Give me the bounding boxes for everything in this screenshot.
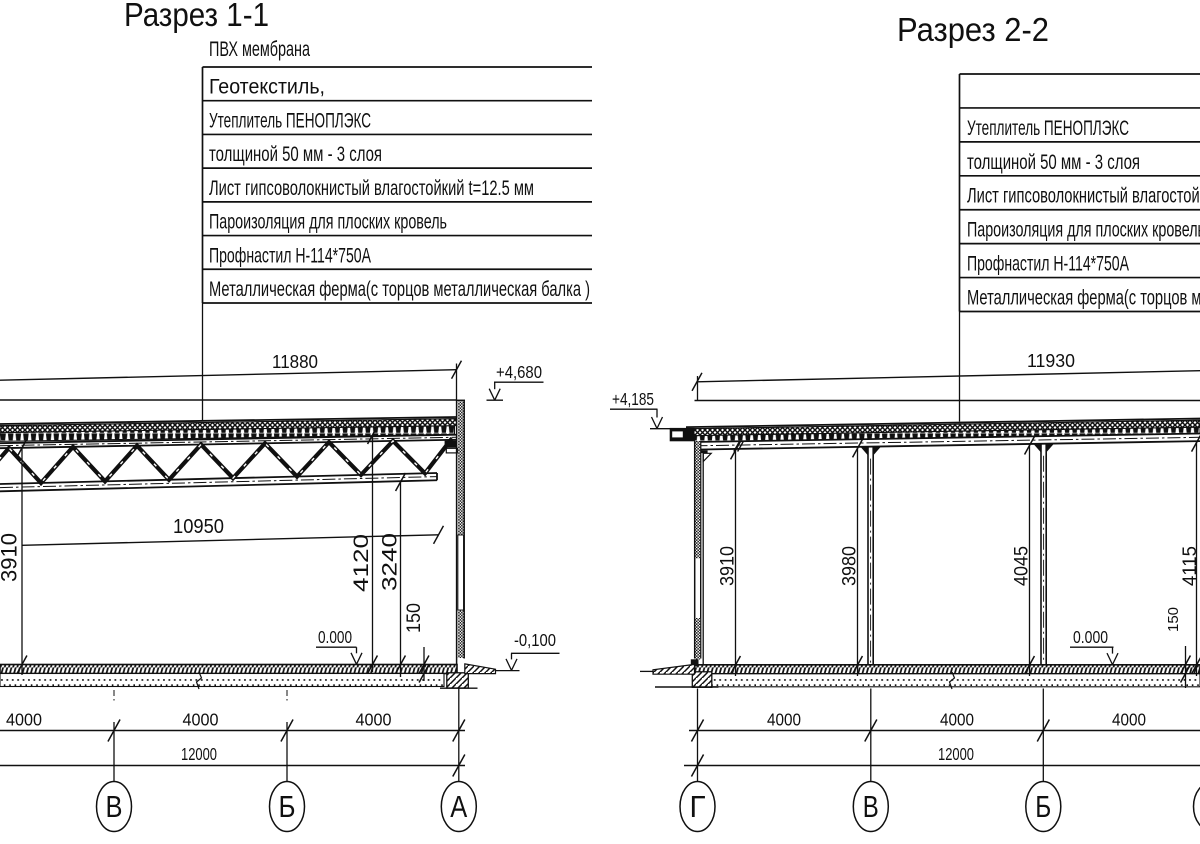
svg-text:10950: 10950 <box>173 516 224 538</box>
svg-text:В: В <box>863 789 879 824</box>
svg-text:Б: Б <box>279 789 296 824</box>
svg-text:Профнастил Н-114*750А: Профнастил Н-114*750А <box>209 244 371 267</box>
svg-text:Металлическая ферма(с торцов м: Металлическая ферма(с торцов металлическ… <box>967 287 1200 310</box>
svg-text:Б: Б <box>1035 789 1051 824</box>
svg-text:+4,680: +4,680 <box>496 362 542 382</box>
svg-text:Пароизоляция для плоских крове: Пароизоляция для плоских кровель <box>209 211 447 234</box>
svg-text:ПВХ мембрана: ПВХ мембрана <box>209 38 310 61</box>
svg-text:0.000: 0.000 <box>318 627 352 647</box>
svg-text:толщиной 50 мм - 3 слоя: толщиной 50 мм - 3 слоя <box>209 143 382 166</box>
svg-text:-0,100: -0,100 <box>514 630 556 650</box>
svg-text:0.000: 0.000 <box>1073 627 1108 647</box>
svg-text:3240: 3240 <box>379 533 402 591</box>
svg-text:толщиной 50 мм - 3 слоя: толщиной 50 мм - 3 слоя <box>967 151 1140 174</box>
svg-text:Г: Г <box>690 789 706 824</box>
svg-text:11930: 11930 <box>1027 350 1075 371</box>
svg-text:4120: 4120 <box>350 534 373 592</box>
svg-text:4115: 4115 <box>1180 546 1200 586</box>
svg-text:Геотекстиль,: Геотекстиль, <box>209 76 325 99</box>
svg-text:12000: 12000 <box>938 744 974 764</box>
svg-text:Металлическая ферма(с торцов м: Металлическая ферма(с торцов металлическ… <box>209 278 590 301</box>
svg-text:Лист гипсоволокнистый влагосто: Лист гипсоволокнистый влагостойкий t=12.… <box>209 177 534 200</box>
svg-text:11880: 11880 <box>272 351 318 372</box>
svg-text:4000: 4000 <box>767 710 801 730</box>
svg-text:12000: 12000 <box>181 744 217 764</box>
svg-text:Разрез 2-2: Разрез 2-2 <box>897 11 1049 48</box>
svg-text:Утеплитель ПЕНОПЛЭКС: Утеплитель ПЕНОПЛЭКС <box>967 117 1129 140</box>
svg-text:150: 150 <box>1166 607 1182 632</box>
svg-text:А: А <box>450 789 467 824</box>
svg-text:Профнастил Н-114*750А: Профнастил Н-114*750А <box>967 253 1129 276</box>
svg-text:3910: 3910 <box>0 533 22 582</box>
svg-text:3980: 3980 <box>840 546 861 586</box>
svg-text:3910: 3910 <box>718 546 739 586</box>
svg-text:4000: 4000 <box>356 710 392 730</box>
svg-text:+4,185: +4,185 <box>612 389 654 409</box>
svg-text:Лист гипсоволокнистый влагосто: Лист гипсоволокнистый влагостойкий t=12.… <box>967 185 1200 208</box>
svg-text:Пароизоляция для плоских крове: Пароизоляция для плоских кровель <box>967 219 1200 242</box>
svg-text:150: 150 <box>404 603 425 633</box>
svg-text:4000: 4000 <box>6 710 42 730</box>
svg-text:4000: 4000 <box>1112 710 1146 730</box>
svg-text:4045: 4045 <box>1012 546 1033 586</box>
svg-text:Разрез 1-1: Разрез 1-1 <box>124 0 269 33</box>
svg-text:В: В <box>106 789 123 824</box>
svg-text:4000: 4000 <box>183 710 219 730</box>
svg-text:4000: 4000 <box>940 710 974 730</box>
svg-text:Утеплитель ПЕНОПЛЭКС: Утеплитель ПЕНОПЛЭКС <box>209 109 371 132</box>
